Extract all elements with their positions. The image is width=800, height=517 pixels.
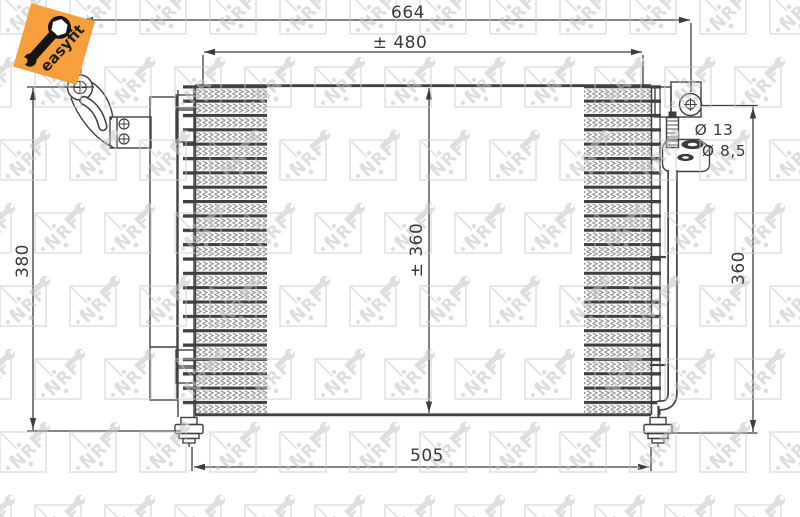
dim-overall-width-label: 664 <box>368 3 448 23</box>
bottom-connector-left <box>175 418 203 448</box>
bolt-head <box>669 112 677 118</box>
dim-port-small-label: Ø 8,5 <box>684 141 764 161</box>
bottom-connector-right <box>644 418 672 448</box>
dim-core-height-label: ± 360 <box>407 210 427 290</box>
core-fins-left <box>196 85 267 415</box>
dim-connector-span-label: 505 <box>387 446 467 466</box>
condenser-drawing-canvas: NRF easyfit 664 ± 480 ± 360 380 360 505 … <box>0 0 800 517</box>
dim-port-large-label: Ø 13 <box>674 120 754 140</box>
easyfit-badge: easyfit <box>0 0 130 130</box>
dim-height-right-label: 360 <box>729 228 749 308</box>
dim-height-left-label: 380 <box>13 221 33 301</box>
dim-core-width-label: ± 480 <box>360 33 440 53</box>
core-fins-right <box>584 85 651 415</box>
right-mounting-bracket <box>655 82 702 117</box>
